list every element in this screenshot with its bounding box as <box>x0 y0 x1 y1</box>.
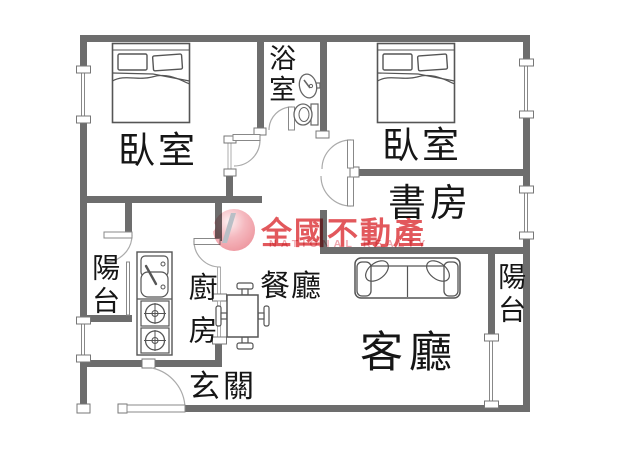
room-label-balcony-left: 陽台 <box>90 253 119 319</box>
wall-hall-left <box>226 176 233 196</box>
room-label-living: 客廳 <box>360 331 458 376</box>
room-label-kitchen: 廚房 <box>185 272 215 358</box>
window-sill <box>77 116 91 123</box>
window-balconyL <box>127 262 130 315</box>
wall-right-b <box>523 117 530 190</box>
window-bedroom2-right <box>525 66 528 113</box>
window-study-right <box>525 193 528 233</box>
window-sill <box>520 111 534 118</box>
door-leaf-bedroom2 <box>348 140 354 168</box>
jamb-entry <box>118 404 127 413</box>
wall-kitchen-right-lower <box>215 343 222 363</box>
window-sill <box>77 355 91 362</box>
window-sill <box>520 232 534 239</box>
door-leaf-study <box>348 177 354 206</box>
window-sill <box>224 169 236 176</box>
sink-icon <box>297 72 320 99</box>
wall-balconyR-divider <box>488 254 495 337</box>
wall-bottom <box>185 405 530 412</box>
wall-left-mid <box>80 119 87 317</box>
room-label-bedroom2: 臥室 <box>382 127 462 165</box>
wall-bedroom2-study <box>355 169 530 176</box>
window-kitchen-left <box>82 324 85 357</box>
room-label-balcony-right: 陽台 <box>496 262 525 328</box>
room-label-bedroom1: 臥室 <box>118 132 198 170</box>
door-arc-study <box>321 176 351 206</box>
opening-hall-left <box>228 143 231 169</box>
brand-name-en: NATIONAL REALTY <box>269 238 429 250</box>
window-sill <box>520 186 534 193</box>
door-leaf-bathroom <box>289 107 295 130</box>
floor-plan: R 臥室 浴室 臥室 書房 陽台 廚房 餐廳 客廳 玄關 陽台 全國不動產 NA… <box>0 0 638 460</box>
window-sill <box>485 334 499 341</box>
door-leaf-bedroom1 <box>233 135 260 141</box>
window-bedroom1-left <box>82 71 85 119</box>
brand-logo: R <box>194 209 255 251</box>
door-leaf-entry <box>127 405 185 412</box>
kitchen-counter-icon <box>137 252 172 355</box>
window-sill <box>520 59 534 66</box>
sofa-icon <box>355 257 460 298</box>
window-sill <box>77 66 91 73</box>
toilet-icon <box>294 104 318 125</box>
opening-kitchen-pass-upper <box>218 267 221 294</box>
door-arc-bedroom1 <box>234 140 260 166</box>
door-leaf-balconyL <box>104 232 132 238</box>
wall-bathroom-left <box>257 42 264 130</box>
bed-icon-bedroom2 <box>378 44 455 123</box>
door-arc-entry <box>152 368 185 408</box>
wall-end-cap <box>77 404 90 413</box>
room-label-entry: 玄關 <box>189 371 257 403</box>
room-label-bathroom: 浴室 <box>266 44 294 106</box>
bed-icon-bedroom1 <box>113 44 190 123</box>
room-label-dining: 餐廳 <box>260 271 322 302</box>
wall-balconyL-divider <box>125 203 132 233</box>
hinge-entry-arc <box>142 359 155 368</box>
jamb-bathroom-right <box>316 131 329 138</box>
window-sill <box>485 401 499 408</box>
door-arc-bedroom2 <box>322 140 351 169</box>
wall-top <box>80 35 530 42</box>
wall-bathroom-right <box>320 42 327 133</box>
jamb-bathroom-left <box>254 128 266 135</box>
wall-bedroom1-bottom <box>80 196 262 203</box>
window-balconyR <box>490 341 493 402</box>
